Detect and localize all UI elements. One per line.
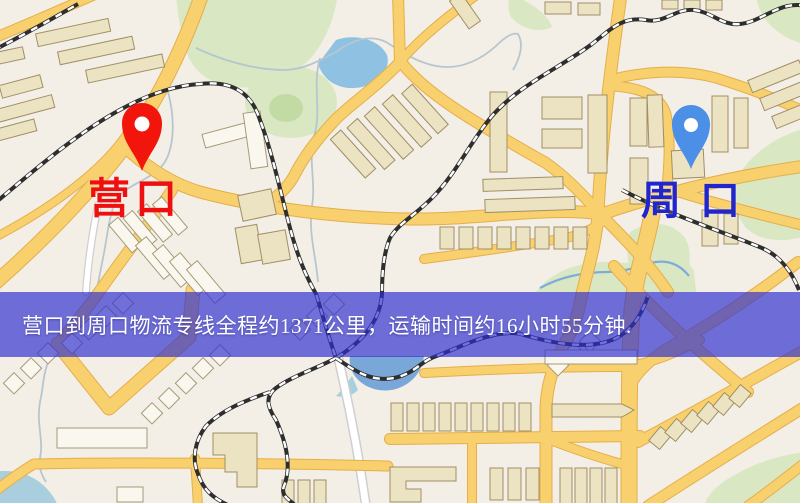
map-canvas[interactable]: 营口 周口 营口到周口物流专线全程约1371公里，运输时间约16小时55分钟. [0,0,800,503]
destination-label: 周口 [641,181,759,221]
route-info-banner: 营口到周口物流专线全程约1371公里，运输时间约16小时55分钟. [0,292,800,357]
route-info-text: 营口到周口物流专线全程约1371公里，运输时间约16小时55分钟. [22,310,632,340]
origin-label: 营口 [88,178,182,220]
origin-pin-icon[interactable] [122,103,162,171]
map-art [0,0,800,503]
